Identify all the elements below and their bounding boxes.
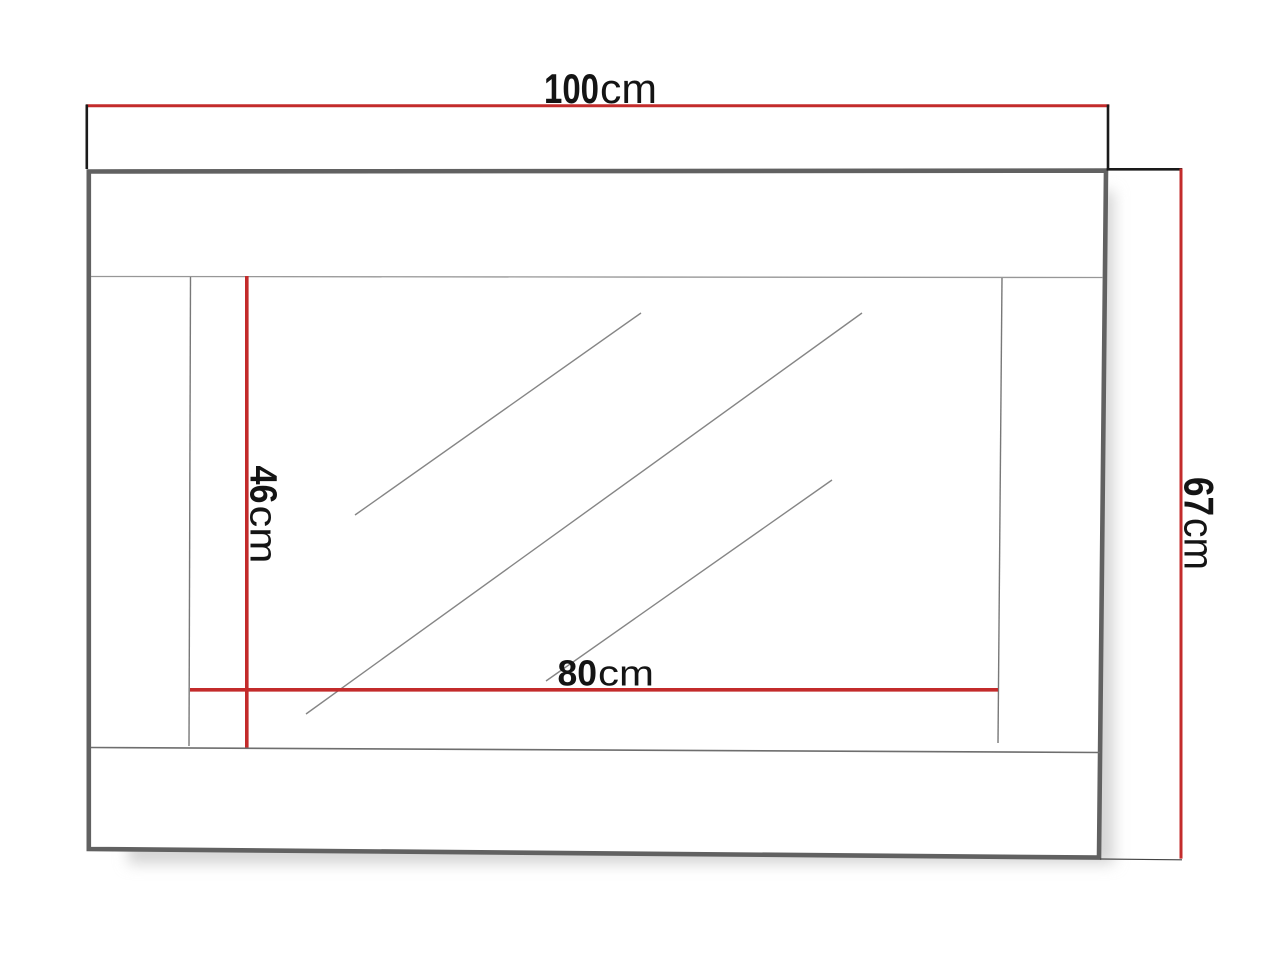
svg-text:100cm: 100cm <box>544 65 657 112</box>
svg-text:46cm: 46cm <box>242 466 284 564</box>
svg-text:80cm: 80cm <box>558 653 655 694</box>
svg-text:67cm: 67cm <box>1176 477 1223 570</box>
